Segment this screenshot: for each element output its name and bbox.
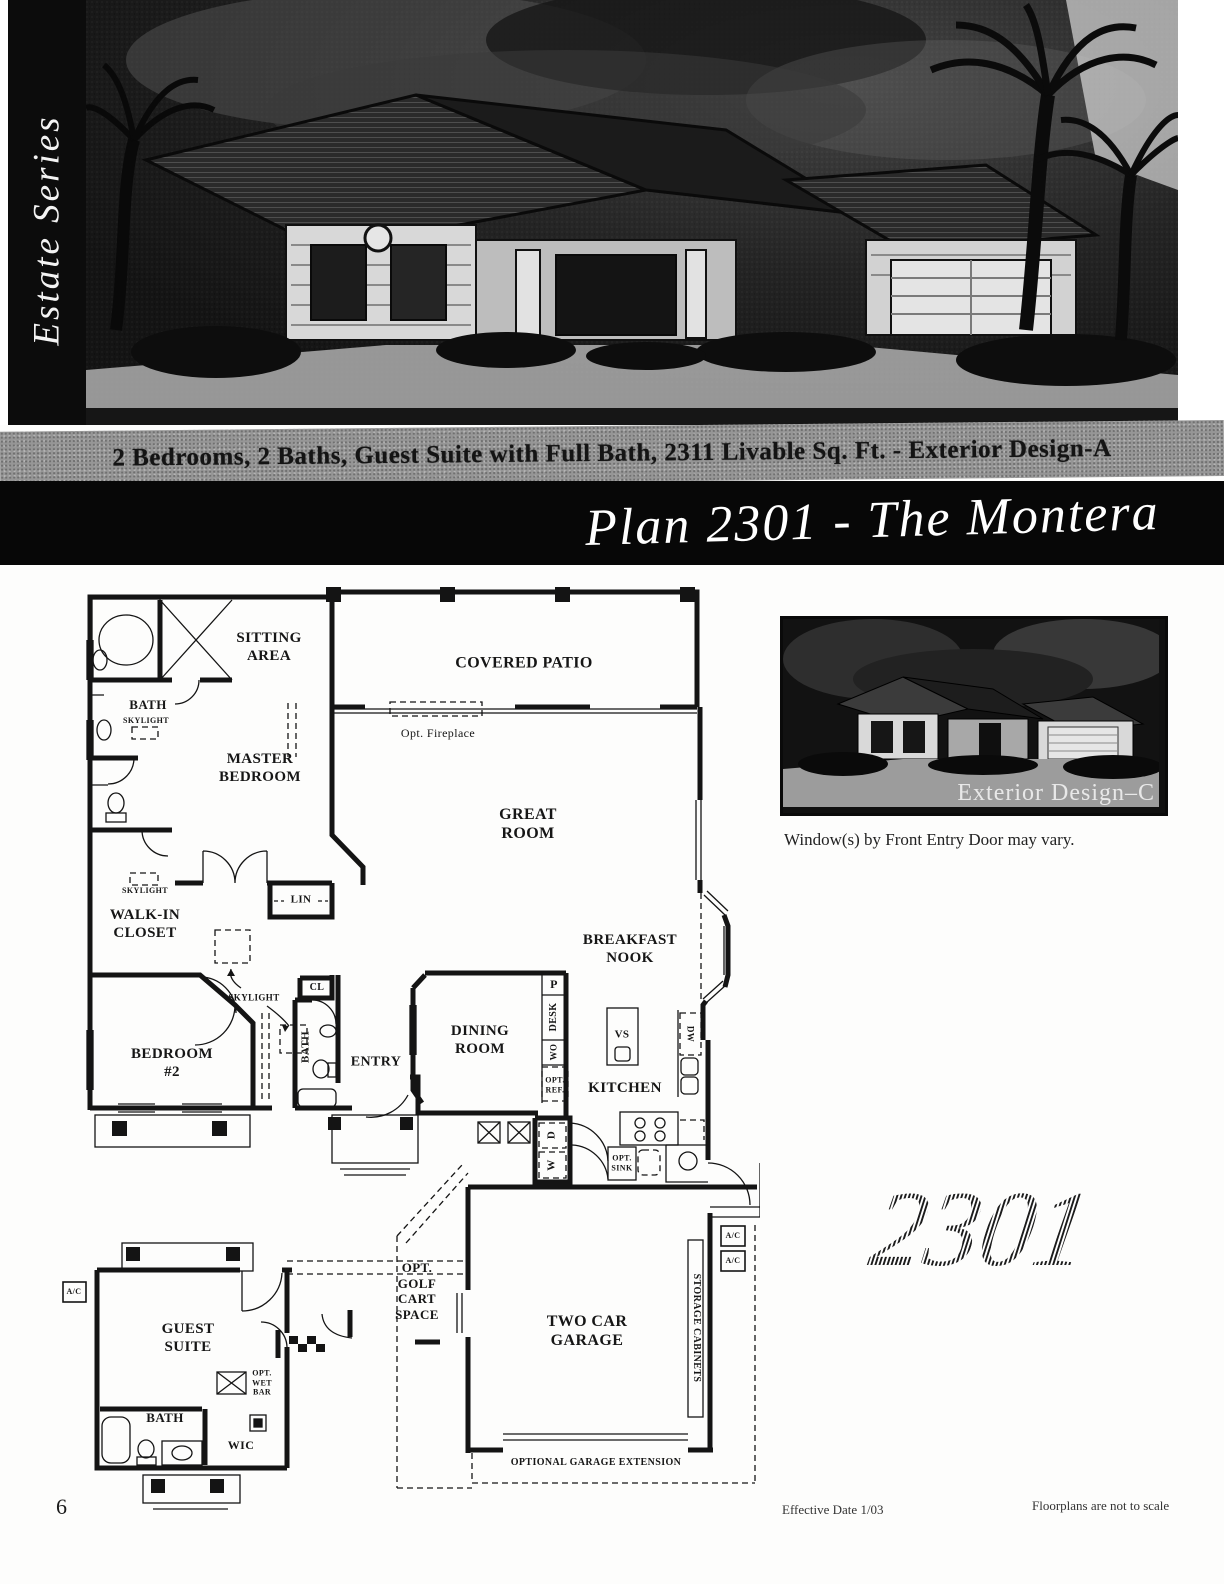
label-optional-garage-extension: OPTIONAL GARAGE EXTENSION: [511, 1457, 682, 1469]
scale-note: Floorplans are not to scale: [1032, 1498, 1169, 1514]
label-veggie-sink: VS: [615, 1028, 630, 1041]
label-dryer: D: [545, 1131, 558, 1139]
label-walk-in-closet: WALK-IN CLOSET: [110, 906, 180, 942]
label-great-room: GREAT ROOM: [499, 805, 557, 843]
spec-banner-text: 2 Bedrooms, 2 Baths, Guest Suite with Fu…: [112, 435, 1111, 473]
label-master-bedroom: MASTER BEDROOM: [219, 750, 301, 786]
plan-number-script: 2301: [830, 1150, 1160, 1310]
exterior-design-c-image: [783, 619, 1159, 807]
window-note: Window(s) by Front Entry Door may vary.: [784, 830, 1074, 850]
label-linen: LIN: [291, 893, 312, 906]
label-opt-ref: OPT. REF.: [545, 1075, 564, 1094]
label-storage-cabinets: STORAGE CABINETS: [690, 1274, 702, 1383]
floorplan: BATH SKYLIGHT SITTING AREA COVERED PATIO…: [60, 585, 760, 1515]
label-opt-wet-bar: OPT. WET BAR: [252, 1369, 272, 1398]
label-kitchen: KITCHEN: [588, 1079, 662, 1097]
label-wic: WIC: [228, 1438, 255, 1452]
brochure-page: Estate Series: [0, 0, 1224, 1584]
label-ac-1: A/C: [726, 1231, 741, 1241]
label-ac-left: A/C: [67, 1287, 82, 1297]
label-opt-fireplace: Opt. Fireplace: [401, 726, 475, 740]
label-wall-oven: WO: [549, 1044, 560, 1061]
label-master-bath: BATH: [129, 697, 166, 713]
label-breakfast-nook: BREAKFAST NOOK: [583, 931, 677, 967]
label-covered-patio: COVERED PATIO: [455, 653, 593, 672]
label-opt-golf-cart-space: OPT. GOLF CART SPACE: [395, 1260, 439, 1322]
label-ac-2: A/C: [726, 1256, 741, 1266]
label-dishwasher: DW: [685, 1026, 696, 1042]
label-opt-sink: OPT. SINK: [611, 1153, 632, 1172]
label-hall-skylight: SKYLIGHT: [228, 993, 279, 1004]
exterior-design-c-card: Exterior Design–C: [780, 616, 1168, 816]
page-number: 6: [56, 1494, 67, 1520]
plan-title: Plan 2301 - The Montera: [585, 483, 1161, 558]
label-washer: W: [545, 1159, 558, 1170]
label-guest-bath: BATH: [146, 1410, 183, 1426]
label-bedroom-2: BEDROOM #2: [131, 1045, 213, 1081]
label-wic-skylight: SKYLIGHT: [122, 886, 168, 896]
effective-date: Effective Date 1/03: [782, 1502, 884, 1518]
estate-series-label: Estate Series: [26, 114, 69, 345]
label-pantry: P: [550, 977, 558, 991]
spec-banner: 2 Bedrooms, 2 Baths, Guest Suite with Fu…: [0, 420, 1224, 488]
label-dining-room: DINING ROOM: [451, 1022, 509, 1058]
label-master-bath-skylight: SKYLIGHT: [123, 716, 169, 726]
exterior-design-c-caption: Exterior Design–C: [957, 780, 1155, 807]
label-entry: ENTRY: [351, 1055, 402, 1072]
house-rendering-image: [86, 0, 1178, 425]
hero-section: Estate Series: [0, 0, 1224, 425]
plan-number-text: 2301: [863, 1169, 1100, 1289]
estate-series-bar: Estate Series: [8, 0, 86, 425]
plan-title-band: Plan 2301 - The Montera: [0, 481, 1224, 565]
label-sitting-area: SITTING AREA: [236, 629, 301, 665]
label-desk: DESK: [548, 1003, 560, 1032]
label-bath-2: BATH: [299, 1031, 312, 1063]
label-guest-suite: GUEST SUITE: [162, 1320, 215, 1356]
label-closet: CL: [310, 982, 325, 994]
label-two-car-garage: TWO CAR GARAGE: [547, 1312, 628, 1350]
